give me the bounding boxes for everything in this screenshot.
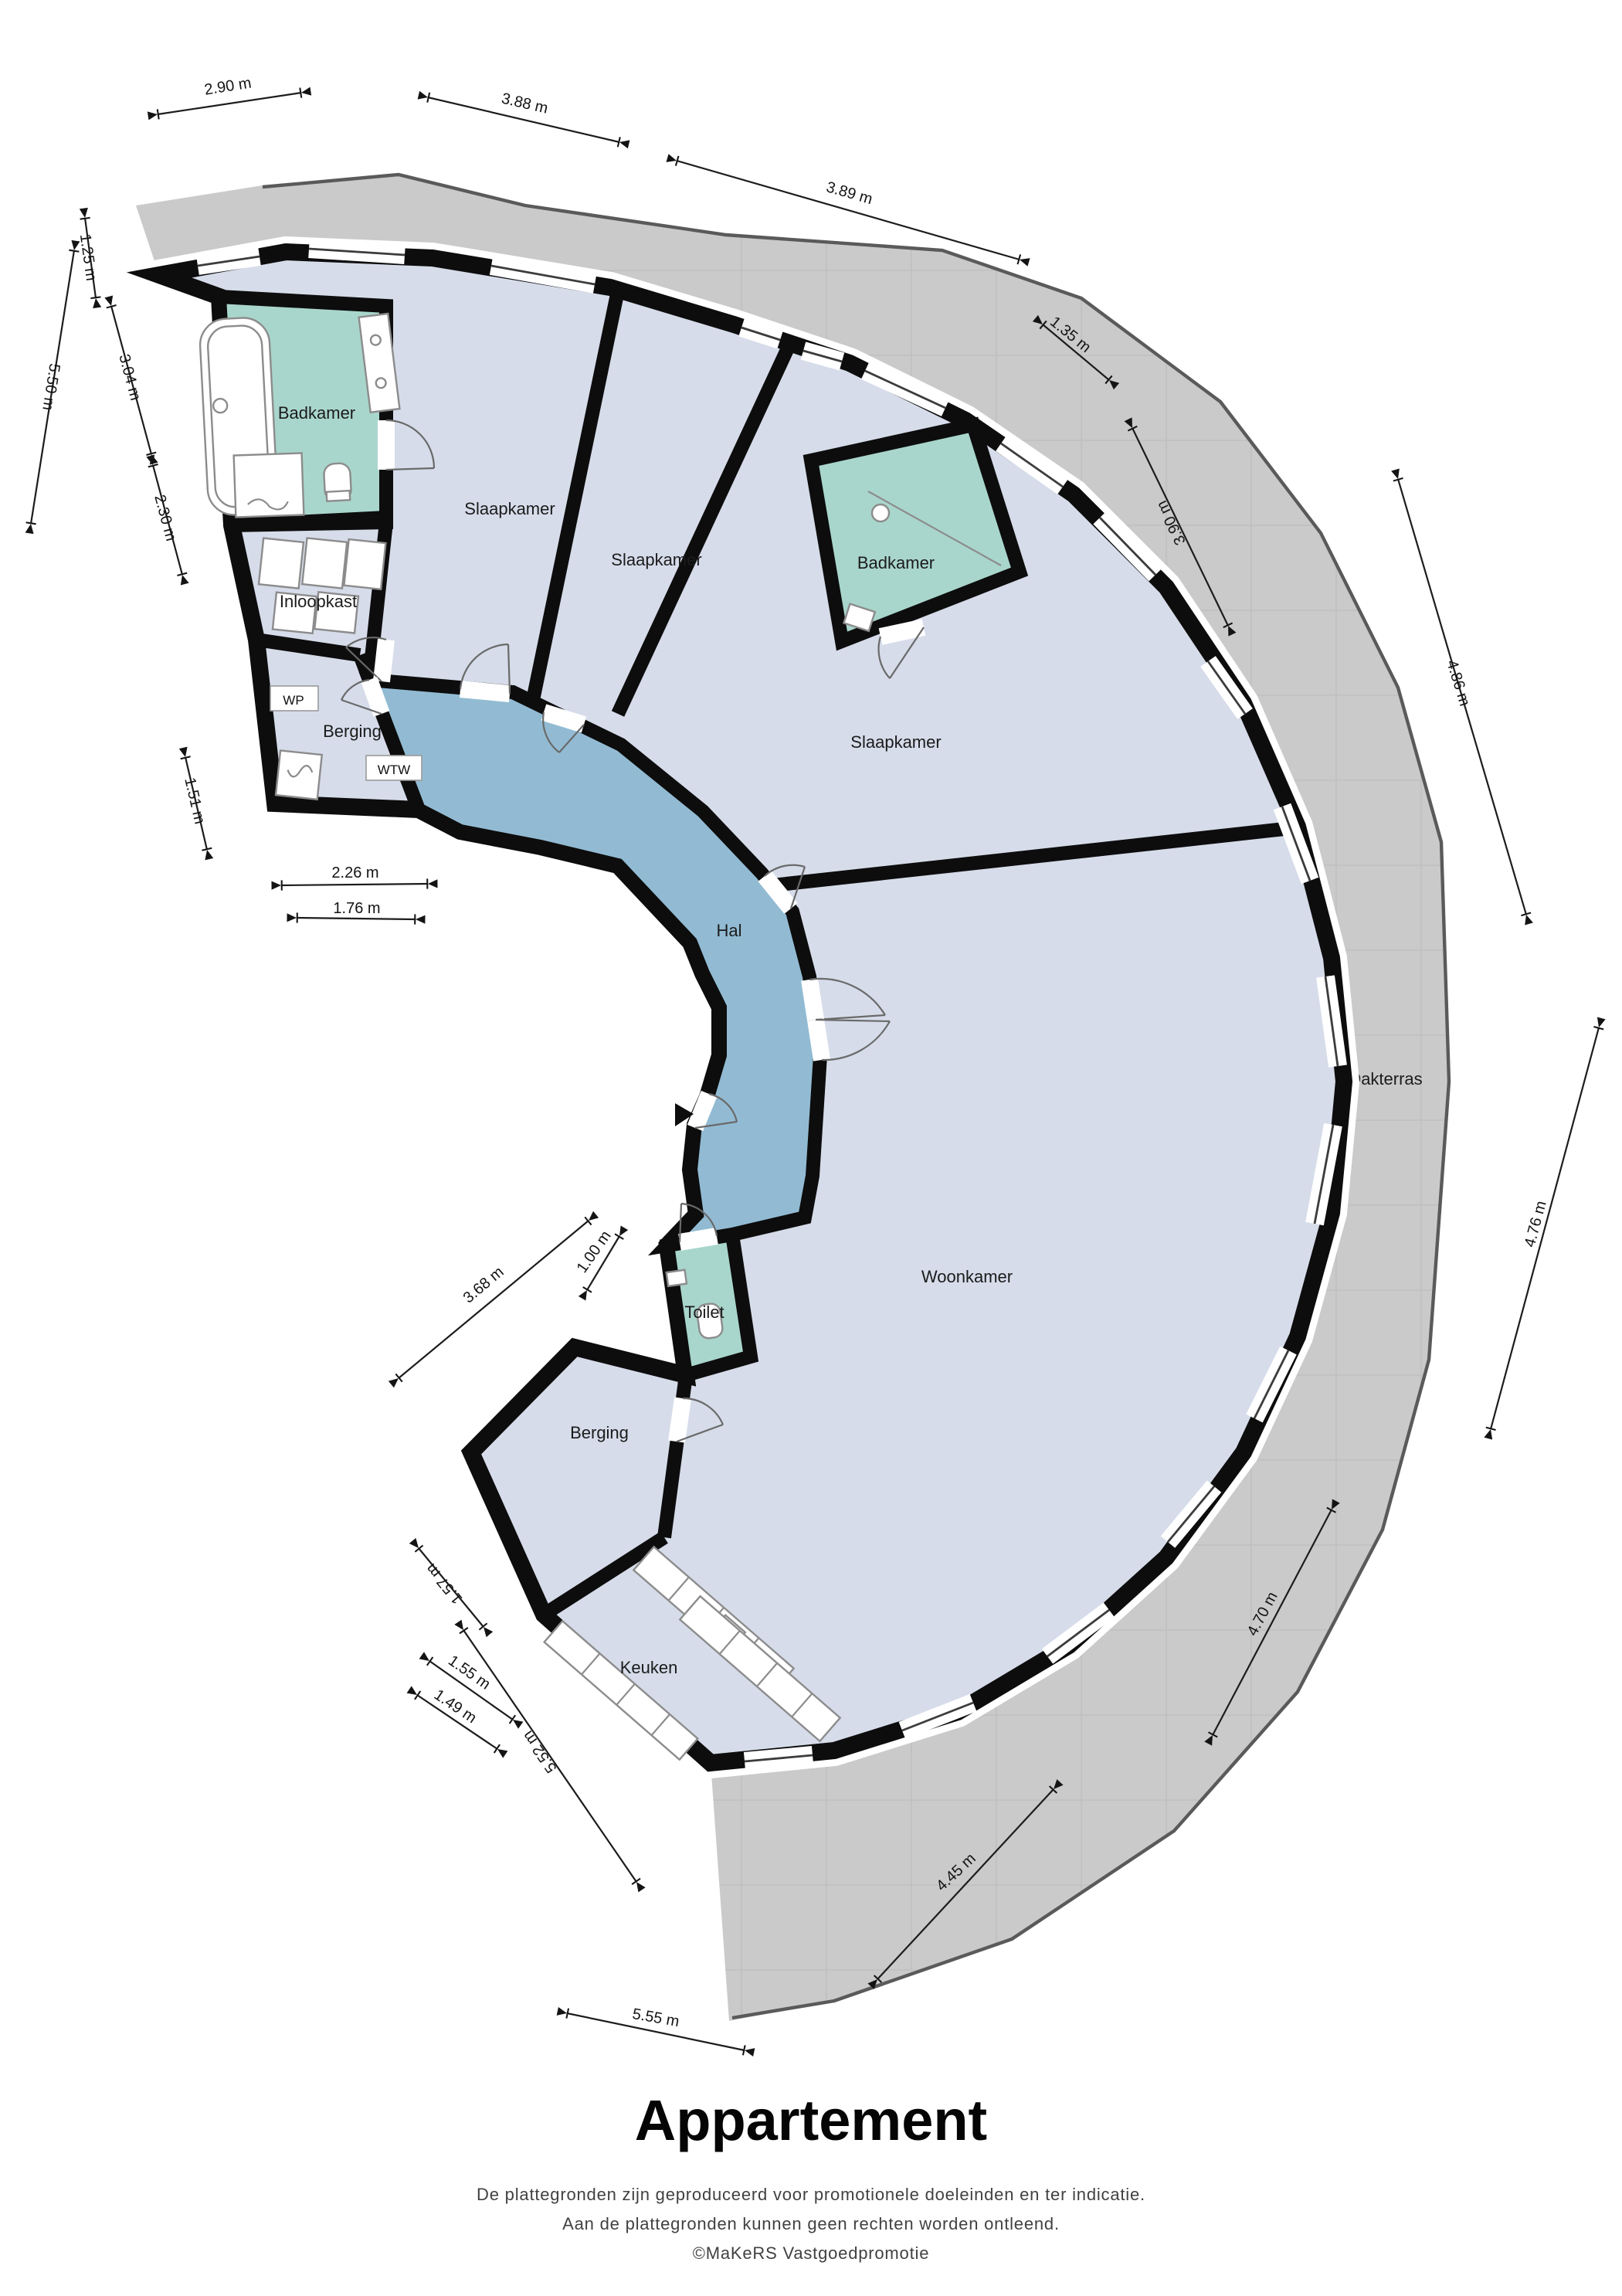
room-label-toilet: Toilet bbox=[684, 1303, 724, 1322]
toilet-icon bbox=[324, 463, 351, 501]
shower-icon bbox=[234, 453, 304, 517]
svg-text:5.52 m: 5.52 m bbox=[520, 1727, 561, 1776]
svg-text:2.26 m: 2.26 m bbox=[331, 864, 378, 881]
dimension: 1.51 m bbox=[181, 757, 208, 850]
dimension: 1.00 m bbox=[574, 1228, 619, 1290]
window bbox=[198, 256, 260, 266]
svg-text:2.30 m: 2.30 m bbox=[151, 493, 179, 543]
disclaimer-line-3: ©MaKeRS Vastgoedpromotie bbox=[693, 2243, 929, 2263]
dimension: 3.04 m bbox=[111, 306, 151, 454]
window bbox=[745, 1755, 813, 1761]
window bbox=[741, 328, 780, 340]
svg-text:1.55 m: 1.55 m bbox=[445, 1652, 494, 1693]
room-label-badkamer-2: Badkamer bbox=[857, 553, 935, 572]
room-label-hal: Hal bbox=[716, 921, 741, 940]
svg-text:5.55 m: 5.55 m bbox=[631, 2006, 680, 2030]
svg-text:2.90 m: 2.90 m bbox=[203, 74, 253, 98]
room-label-keuken: Keuken bbox=[620, 1658, 678, 1677]
dimension: 5.55 m bbox=[567, 2006, 745, 2050]
page-title: Appartement bbox=[635, 2088, 987, 2152]
svg-text:5.50 m: 5.50 m bbox=[39, 362, 63, 412]
floorplan-canvas: Dakterras bbox=[0, 0, 1622, 2296]
room-label-slaapkamer-3: Slaapkamer bbox=[850, 732, 941, 752]
dimension: 2.30 m bbox=[151, 465, 182, 575]
svg-text:1.25 m: 1.25 m bbox=[76, 233, 100, 282]
room-label-dakterras: Dakterras bbox=[1349, 1069, 1422, 1089]
dimension: 2.90 m bbox=[158, 74, 301, 114]
floorplan-page: Dakterras bbox=[0, 0, 1622, 2296]
disclaimer-line-2: Aan de plattegronden kunnen geen rechten… bbox=[562, 2214, 1060, 2233]
svg-text:1.51 m: 1.51 m bbox=[181, 776, 208, 826]
dimension: 1.57 m bbox=[419, 1548, 484, 1627]
window bbox=[803, 351, 842, 362]
svg-text:3.89 m: 3.89 m bbox=[824, 178, 874, 208]
dimension: 4.76 m bbox=[1491, 1027, 1599, 1429]
dimension: 1.49 m bbox=[417, 1686, 497, 1749]
room-label-inloopkast: Inloopkast bbox=[280, 592, 357, 611]
svg-text:1.00 m: 1.00 m bbox=[574, 1228, 615, 1276]
window bbox=[1325, 976, 1338, 1066]
svg-text:1.57 m: 1.57 m bbox=[422, 1560, 466, 1607]
svg-text:4.86 m: 4.86 m bbox=[1443, 658, 1473, 708]
room-label-slaapkamer-1: Slaapkamer bbox=[464, 499, 555, 518]
disclaimer-line-1: De plattegronden zijn geproduceerd voor … bbox=[477, 2185, 1145, 2204]
room-label-badkamer-1: Badkamer bbox=[278, 403, 355, 423]
room-label-berging-1: Berging bbox=[323, 722, 382, 741]
svg-text:3.68 m: 3.68 m bbox=[460, 1263, 507, 1306]
room-label-woonkamer: Woonkamer bbox=[921, 1267, 1013, 1286]
dimension: 1.76 m bbox=[297, 900, 416, 919]
washing-machine-icon bbox=[276, 750, 322, 799]
dimension: 2.26 m bbox=[281, 864, 428, 885]
svg-text:3.88 m: 3.88 m bbox=[500, 90, 550, 117]
room-label-berging-2: Berging bbox=[570, 1423, 629, 1442]
dimension: 3.88 m bbox=[428, 90, 619, 142]
wtw-label: WTW bbox=[378, 763, 410, 777]
svg-text:1.76 m: 1.76 m bbox=[333, 900, 380, 917]
dimension: 5.50 m bbox=[31, 250, 74, 524]
dimension: 1.25 m bbox=[76, 218, 100, 298]
svg-text:3.04 m: 3.04 m bbox=[115, 352, 144, 402]
window bbox=[309, 249, 405, 255]
room-label-slaapkamer-2: Slaapkamer bbox=[611, 550, 701, 569]
wp-label: WP bbox=[283, 693, 304, 708]
